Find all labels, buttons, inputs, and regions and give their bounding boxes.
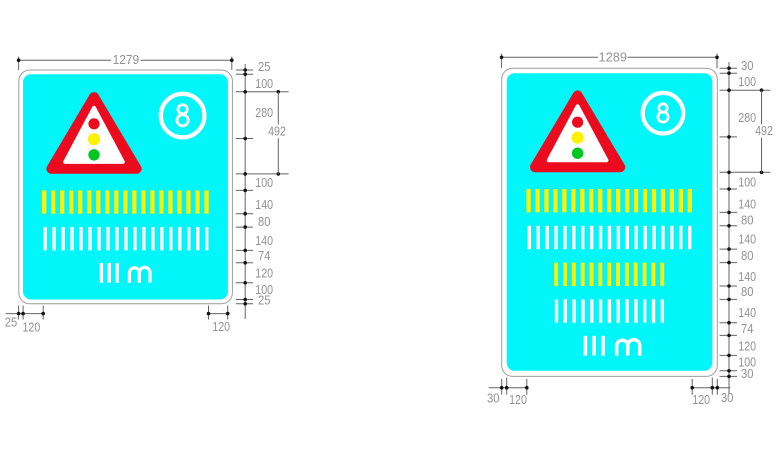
- svg-text:100: 100: [738, 75, 756, 89]
- svg-text:74: 74: [741, 322, 754, 336]
- svg-text:140: 140: [738, 197, 756, 211]
- svg-text:25: 25: [5, 315, 18, 329]
- svg-text:100: 100: [738, 176, 756, 190]
- svg-text:120: 120: [692, 393, 710, 407]
- svg-text:30: 30: [721, 391, 734, 405]
- svg-text:280: 280: [738, 111, 756, 125]
- svg-text:492: 492: [755, 124, 773, 138]
- svg-text:100: 100: [255, 77, 273, 91]
- svg-text:120: 120: [509, 393, 527, 407]
- svg-text:140: 140: [738, 233, 756, 247]
- svg-text:80: 80: [741, 213, 754, 227]
- svg-text:120: 120: [23, 320, 41, 334]
- svg-text:140: 140: [255, 234, 273, 248]
- svg-text:100: 100: [255, 176, 273, 190]
- svg-text:1279: 1279: [113, 52, 140, 67]
- svg-text:120: 120: [738, 340, 756, 354]
- svg-text:120: 120: [212, 320, 230, 334]
- svg-text:30: 30: [487, 391, 500, 405]
- svg-text:492: 492: [268, 124, 286, 138]
- svg-text:74: 74: [258, 249, 271, 263]
- svg-text:280: 280: [255, 106, 273, 120]
- svg-text:80: 80: [741, 249, 754, 263]
- svg-text:25: 25: [258, 60, 271, 74]
- svg-text:30: 30: [741, 59, 754, 73]
- svg-text:140: 140: [255, 198, 273, 212]
- svg-text:80: 80: [741, 285, 754, 299]
- svg-text:120: 120: [255, 267, 273, 281]
- svg-text:140: 140: [738, 306, 756, 320]
- svg-text:25: 25: [258, 293, 271, 307]
- svg-text:30: 30: [741, 367, 754, 381]
- svg-text:140: 140: [738, 270, 756, 284]
- svg-text:1289: 1289: [599, 49, 628, 64]
- svg-text:80: 80: [258, 215, 271, 229]
